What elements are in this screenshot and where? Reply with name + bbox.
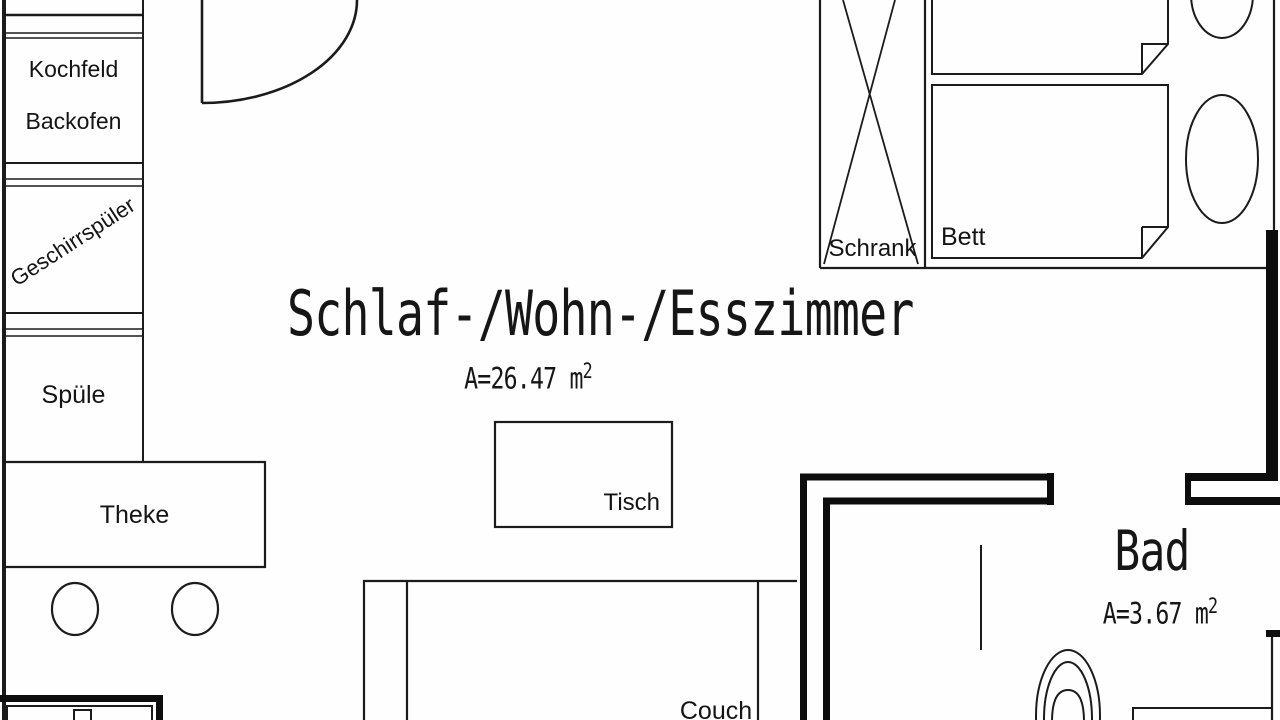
label-couch: Couch bbox=[661, 698, 771, 720]
pillow bbox=[1191, 0, 1253, 38]
bath-wall-outer-face bbox=[804, 477, 1055, 720]
label-bed: Bett bbox=[941, 224, 1041, 252]
label-wardrobe: Schrank bbox=[822, 236, 923, 262]
room-area-bath-sup: 2 bbox=[1208, 594, 1217, 618]
wall-window-stub bbox=[1266, 630, 1280, 637]
label-cooktop: Kochfeld bbox=[4, 57, 143, 82]
toilet-bowl-curve bbox=[1052, 690, 1084, 720]
bath-doorway-bar-bottom bbox=[1185, 497, 1280, 505]
label-counter: Theke bbox=[4, 502, 265, 530]
wardrobe-cross-line bbox=[824, 0, 895, 264]
room-area-bath: A=3.67 m2 bbox=[1040, 595, 1280, 630]
room-title-living: Schlaf-/Wohn-/Esszimmer bbox=[287, 280, 737, 348]
wall-bottom-left bbox=[0, 695, 163, 702]
sink-counter-outline bbox=[1133, 708, 1273, 720]
bath-wall-inner-face bbox=[827, 501, 1055, 720]
label-table: Tisch bbox=[500, 490, 660, 516]
pillow bbox=[1186, 95, 1258, 223]
bar-stool bbox=[172, 583, 218, 635]
room-area-bath-value: A=3.67 m bbox=[1103, 596, 1208, 630]
bath-doorway-bar-top bbox=[1185, 473, 1278, 481]
bar-stool bbox=[52, 583, 98, 635]
wardrobe-cross-line bbox=[843, 0, 918, 264]
room-area-living: A=26.47 m2 bbox=[368, 360, 688, 395]
bed-duvet-top bbox=[932, 0, 1168, 74]
toilet-outer bbox=[1036, 650, 1100, 720]
door-swing-arc bbox=[202, 0, 357, 103]
floor-plan: Kochfeld Backofen Geschirrspüler Spüle T… bbox=[0, 0, 1280, 720]
bath-doorway-cap bbox=[1185, 473, 1191, 505]
entry-fixture-detail bbox=[74, 710, 91, 720]
label-oven: Backofen bbox=[4, 109, 143, 134]
wall-bottom-left-stub bbox=[156, 695, 163, 720]
room-title-bath: Bad bbox=[1074, 521, 1230, 582]
room-area-living-value: A=26.47 m bbox=[464, 361, 583, 395]
room-area-living-sup: 2 bbox=[583, 359, 592, 383]
entry-fixture-outline bbox=[7, 706, 152, 720]
wall-right-thick bbox=[1266, 230, 1278, 480]
label-sink: Spüle bbox=[4, 382, 143, 410]
bath-wall-end-cap bbox=[1047, 473, 1054, 505]
